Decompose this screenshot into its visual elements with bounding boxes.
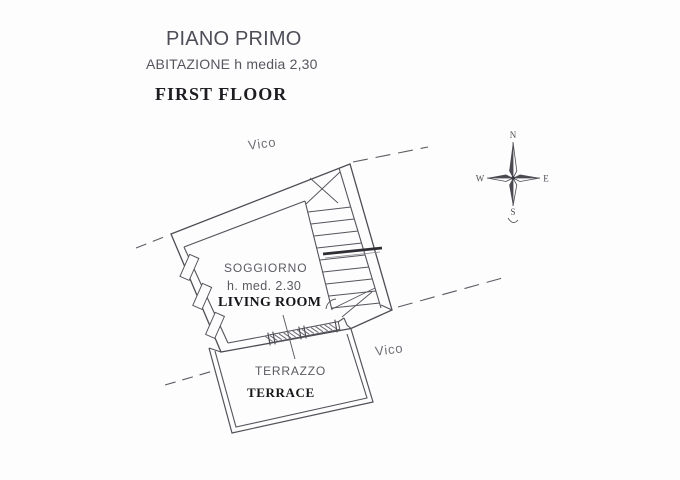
compass-arm-south [513, 178, 517, 206]
stair-tread [329, 291, 376, 296]
floorplan-page: N E S W PIANO PRIMO ABITAZIONE h media 2… [0, 0, 680, 480]
stair-tread [314, 231, 358, 236]
stair-tread [326, 279, 372, 284]
compass-arm-north [513, 142, 517, 178]
compass-label-east: E [543, 174, 549, 184]
street-label-top: Vico [247, 135, 277, 151]
compass-arm-east [513, 178, 540, 182]
terrace-inner-wall [215, 334, 367, 427]
terrace-label-en: TERRACE [247, 386, 315, 399]
stair-tread [308, 207, 351, 212]
right-inner-wall [339, 168, 392, 310]
compass-arm-west [487, 178, 513, 182]
compass-center-dot [511, 176, 515, 180]
window-3 [206, 312, 225, 338]
compass-label-west: W [476, 174, 485, 184]
page-title-english: FIRST FLOOR [155, 85, 287, 103]
living-room-height-note: h. med. 2.30 [227, 280, 301, 293]
building-outer-wall [171, 164, 392, 352]
terrace-label-it: TERRAZZO [255, 365, 326, 377]
boundary-dash-right [398, 277, 506, 307]
window-1 [180, 254, 199, 280]
compass-label-south: S [510, 207, 515, 217]
compass-arm-east [513, 175, 540, 179]
compass-arm-north [509, 142, 513, 178]
living-room-label-en: LIVING ROOM [218, 296, 321, 310]
stair-tread [317, 243, 362, 248]
compass-flourish [508, 218, 518, 223]
top-inner-wall [184, 201, 305, 247]
terrace-door-band [265, 315, 340, 359]
boundary-dash-top-right [353, 147, 428, 162]
window-2 [193, 283, 212, 309]
compass-arm-south [509, 178, 513, 206]
compass-label-north: N [510, 130, 517, 140]
stair-tread [311, 219, 354, 224]
stair-winder-top [306, 172, 340, 204]
compass-arm-west [487, 175, 513, 179]
street-label-right: Vico [374, 341, 404, 357]
page-title: PIANO PRIMO [166, 29, 302, 49]
boundary-dash-left [165, 371, 213, 385]
compass-rose: N E S W [476, 130, 550, 223]
living-room-label-it: SOGGIORNO [224, 262, 307, 274]
boundary-dash-top-left [136, 235, 169, 248]
plan-svg: N E S W [0, 0, 680, 480]
page-subtitle: ABITAZIONE h media 2,30 [146, 57, 318, 71]
stair-tread [323, 267, 369, 272]
stair-left-wall [305, 201, 332, 310]
stair-winder-top [310, 178, 338, 203]
